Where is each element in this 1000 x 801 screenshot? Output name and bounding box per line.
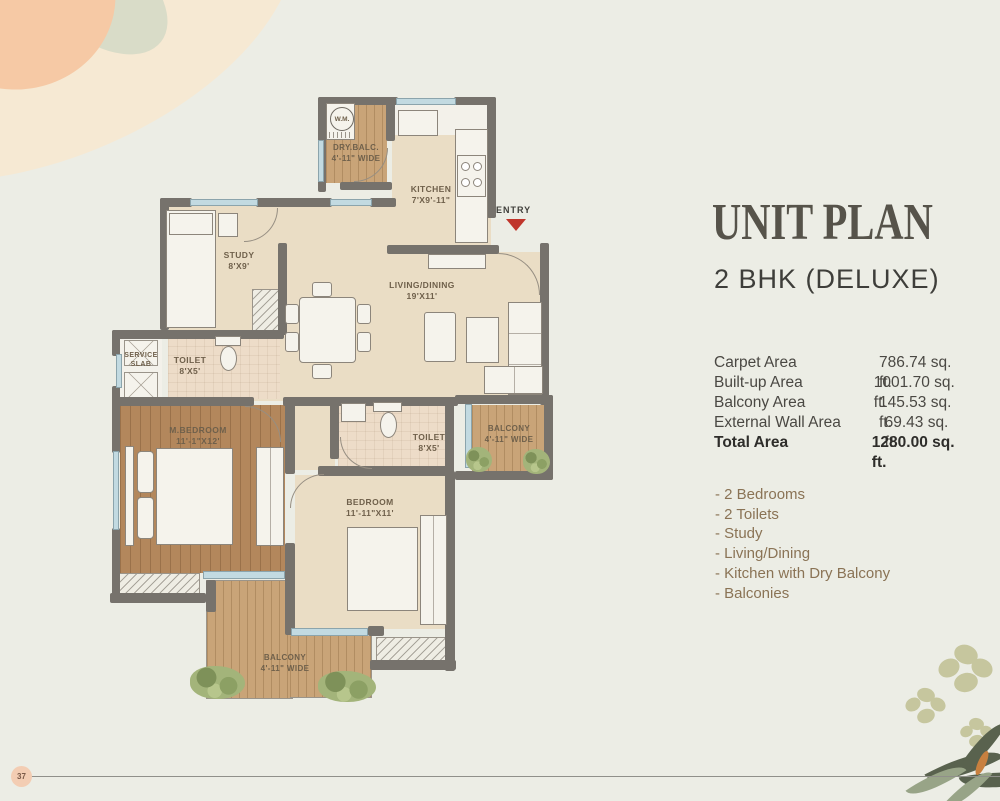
feature-item: - 2 Bedrooms [715,485,890,505]
room-dim: 4'-11" WIDE [320,153,392,164]
room-name: BEDROOM [320,497,420,508]
dining-chair [357,332,371,352]
wall [206,580,216,612]
area-value: 1280.00 sq. ft. [872,433,964,453]
wall [285,543,295,635]
wall [112,330,284,339]
sage-leaf-shape [6,0,191,79]
unit-type-subtitle: 2 BHK (DELUXE) [714,264,940,295]
area-label: Balcony Area [714,393,879,413]
room-name: STUDY [203,250,275,261]
master-bed-headboard [125,446,134,546]
wall [370,660,456,670]
room-name: KITCHEN [395,184,467,195]
bedroom-wardrobe [420,515,447,625]
wall [112,397,254,406]
room-dim: 11'-11"X11' [320,508,420,519]
wall [283,397,458,406]
page-title: UNIT PLAN [712,192,933,251]
wall [340,182,392,190]
room-dim: 4'-11" WIDE [243,663,327,674]
area-row: Carpet Area 786.74 sq. ft. [714,353,964,373]
passage-floor [293,400,335,470]
toilet2-wc-tank [373,402,402,412]
balcony-right-label: BALCONY 4'-11" WIDE [468,423,550,445]
study-label: STUDY 8'X9' [203,250,275,272]
peach-blob-shape [0,0,132,109]
area-table: Carpet Area 786.74 sq. ft. Built-up Area… [714,353,964,453]
armchair [424,312,456,362]
dining-chair [312,282,332,297]
kitchen-label: KITCHEN 7'X9'-11" [395,184,467,206]
entry-arrow-icon [506,219,526,231]
room-name: M.BEDROOM [148,425,248,436]
toilet2-label: TOILET 8'X5' [393,432,465,454]
room-dim: 11'-1"X12' [148,436,248,447]
wall [110,593,206,603]
wall [285,397,295,474]
toilet1-wc-tank [215,336,241,346]
master-bed-pillow [137,497,154,539]
dining-chair [285,332,299,352]
dining-chair [285,304,299,324]
room-dim: 8'X5' [393,443,465,454]
feature-list: - 2 Bedrooms - 2 Toilets - Study - Livin… [715,485,890,603]
flower-shape [960,718,994,748]
service-slab-grill-2 [124,372,158,398]
plant [190,666,245,699]
feature-item: - Balconies [715,584,890,604]
study-nightstand [218,213,238,237]
area-value: 145.53 sq. ft. [879,393,964,413]
dining-table [299,297,356,363]
room-dim: 7'X9'-11" [395,195,467,206]
flower-shape [938,645,994,693]
wall [256,198,332,207]
area-value: 786.74 sq. ft. [879,353,964,373]
area-value: 1001.70 sq. ft. [874,373,964,393]
wall [387,245,499,254]
dining-chair [312,364,332,379]
wall [370,198,396,207]
tv-cabinet [428,254,486,269]
feature-item: - Study [715,524,890,544]
window [291,628,368,636]
area-row: External Wall Area 69.43 sq. ft. [714,413,964,433]
stove-burner [461,162,470,171]
window [330,199,372,206]
room-name: BALCONY [243,652,327,663]
bedroom-label: BEDROOM 11'-11"X11' [320,497,420,519]
wall [368,626,384,636]
master-bed-pillow [137,451,154,493]
area-label: Total Area [714,433,872,453]
area-row-total: Total Area 1280.00 sq. ft. [714,433,964,453]
toilet1-label: TOILET 8'X5' [154,355,226,377]
wall [112,528,120,598]
master-bed-mattress [156,448,233,545]
plant [318,671,376,702]
area-label: Carpet Area [714,353,879,373]
bedroom-bed-mattress [347,527,418,611]
room-name: LIVING/DINING [358,280,486,291]
window [190,199,258,206]
room-name: DRY.BALC. [320,142,392,153]
planter-hatch-right [376,637,452,661]
feature-item: - Kitchen with Dry Balcony [715,564,890,584]
toilet2-washbasin [341,403,366,422]
master-bedroom-label: M.BEDROOM 11'-1"X12' [148,425,248,447]
entry-label: ENTRY [496,205,531,215]
area-value: 69.43 sq. ft. [885,413,964,433]
room-dim: 8'X5' [154,366,226,377]
wall [112,397,120,453]
room-dim: 8'X9' [203,261,275,272]
study-bed-pillow [169,213,213,235]
room-dim: 4'-11" WIDE [468,434,550,445]
feature-item: - Living/Dining [715,544,890,564]
stair-hatch [252,289,280,333]
fern-leaves-shape [880,730,1000,801]
area-row: Balcony Area 145.53 sq. ft. [714,393,964,413]
dry-balcony-label: DRY.BALC. 4'-11" WIDE [320,142,392,164]
feature-item: - 2 Toilets [715,505,890,525]
wall [487,97,496,218]
window [396,98,456,105]
wall [330,397,339,459]
dining-chair [357,304,371,324]
plant [523,449,550,474]
living-dining-label: LIVING/DINING 19'X11' [358,280,486,302]
balcony-bottom-label: BALCONY 4'-11" WIDE [243,652,327,674]
page-number-badge: 37 [11,766,32,787]
utility-counter [398,110,438,136]
washing-machine: W.M. [326,103,355,140]
washing-machine-drum: W.M. [330,107,354,131]
wall [455,395,553,404]
window [203,571,285,579]
stove-burner [473,162,482,171]
room-name: TOILET [393,432,465,443]
area-label: External Wall Area [714,413,885,433]
area-row: Built-up Area 1001.70 sq. ft. [714,373,964,393]
room-name: BALCONY [468,423,550,434]
master-wardrobe [256,447,284,546]
coffee-table [466,317,499,363]
room-name: TOILET [154,355,226,366]
washing-machine-grill [329,132,353,138]
window [113,451,119,530]
stove-burner [473,178,482,187]
plant [466,447,492,472]
wall [318,466,448,476]
area-label: Built-up Area [714,373,874,393]
room-dim: 19'X11' [358,291,486,302]
sofa-horizontal [484,366,543,394]
footer-rule [31,776,1000,777]
brochure-page: W.M. DRY.BALC. 4'-11" WIDE KITCHEN 7'X9'… [0,0,1000,801]
wall [386,97,395,141]
flower-shape [905,688,947,724]
